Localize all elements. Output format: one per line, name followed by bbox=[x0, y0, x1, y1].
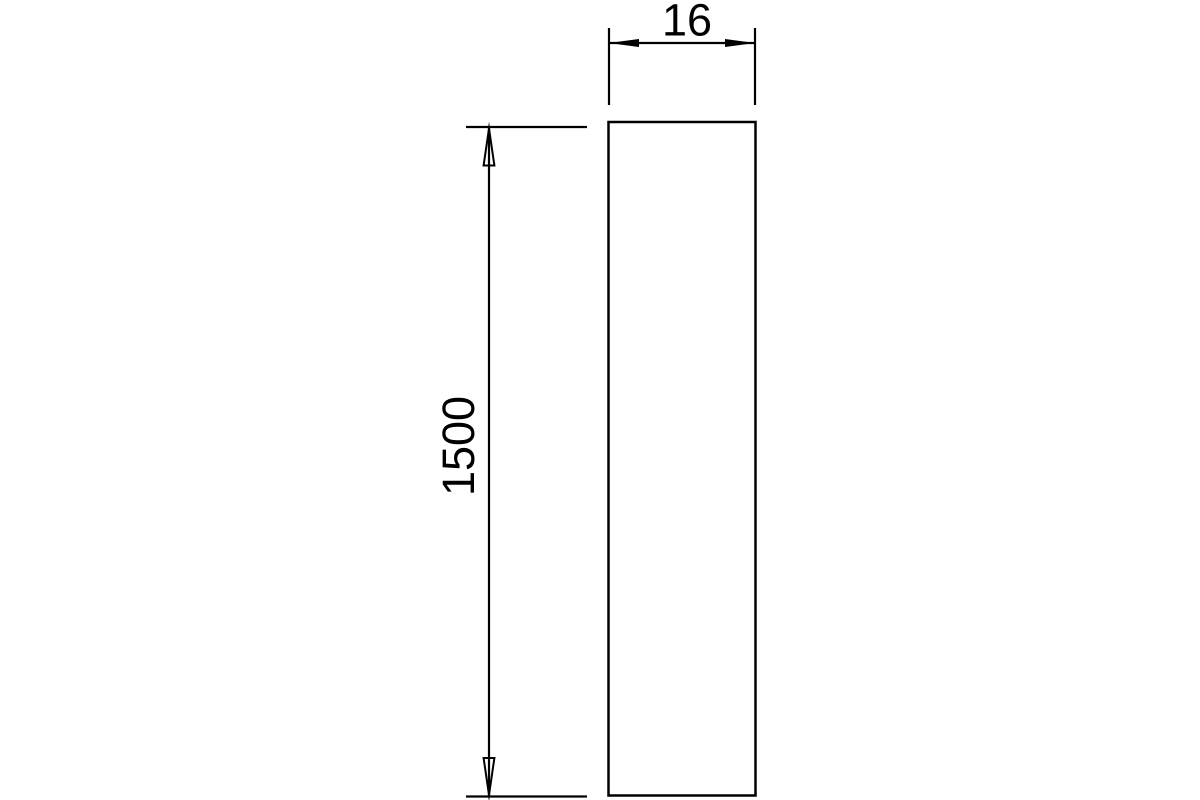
part bbox=[609, 122, 756, 796]
part-outline-rect bbox=[609, 122, 756, 796]
height-dimension: 1500 bbox=[433, 127, 587, 797]
width-arrowhead-left-icon bbox=[609, 39, 639, 47]
technical-drawing: 16 1500 bbox=[0, 0, 1200, 800]
width-dimension-label: 16 bbox=[662, 0, 712, 46]
height-dimension-label: 1500 bbox=[433, 396, 484, 496]
width-dimension: 16 bbox=[609, 0, 755, 105]
width-arrowhead-right-icon bbox=[725, 39, 755, 47]
drawing-canvas: 16 1500 bbox=[0, 0, 1200, 800]
